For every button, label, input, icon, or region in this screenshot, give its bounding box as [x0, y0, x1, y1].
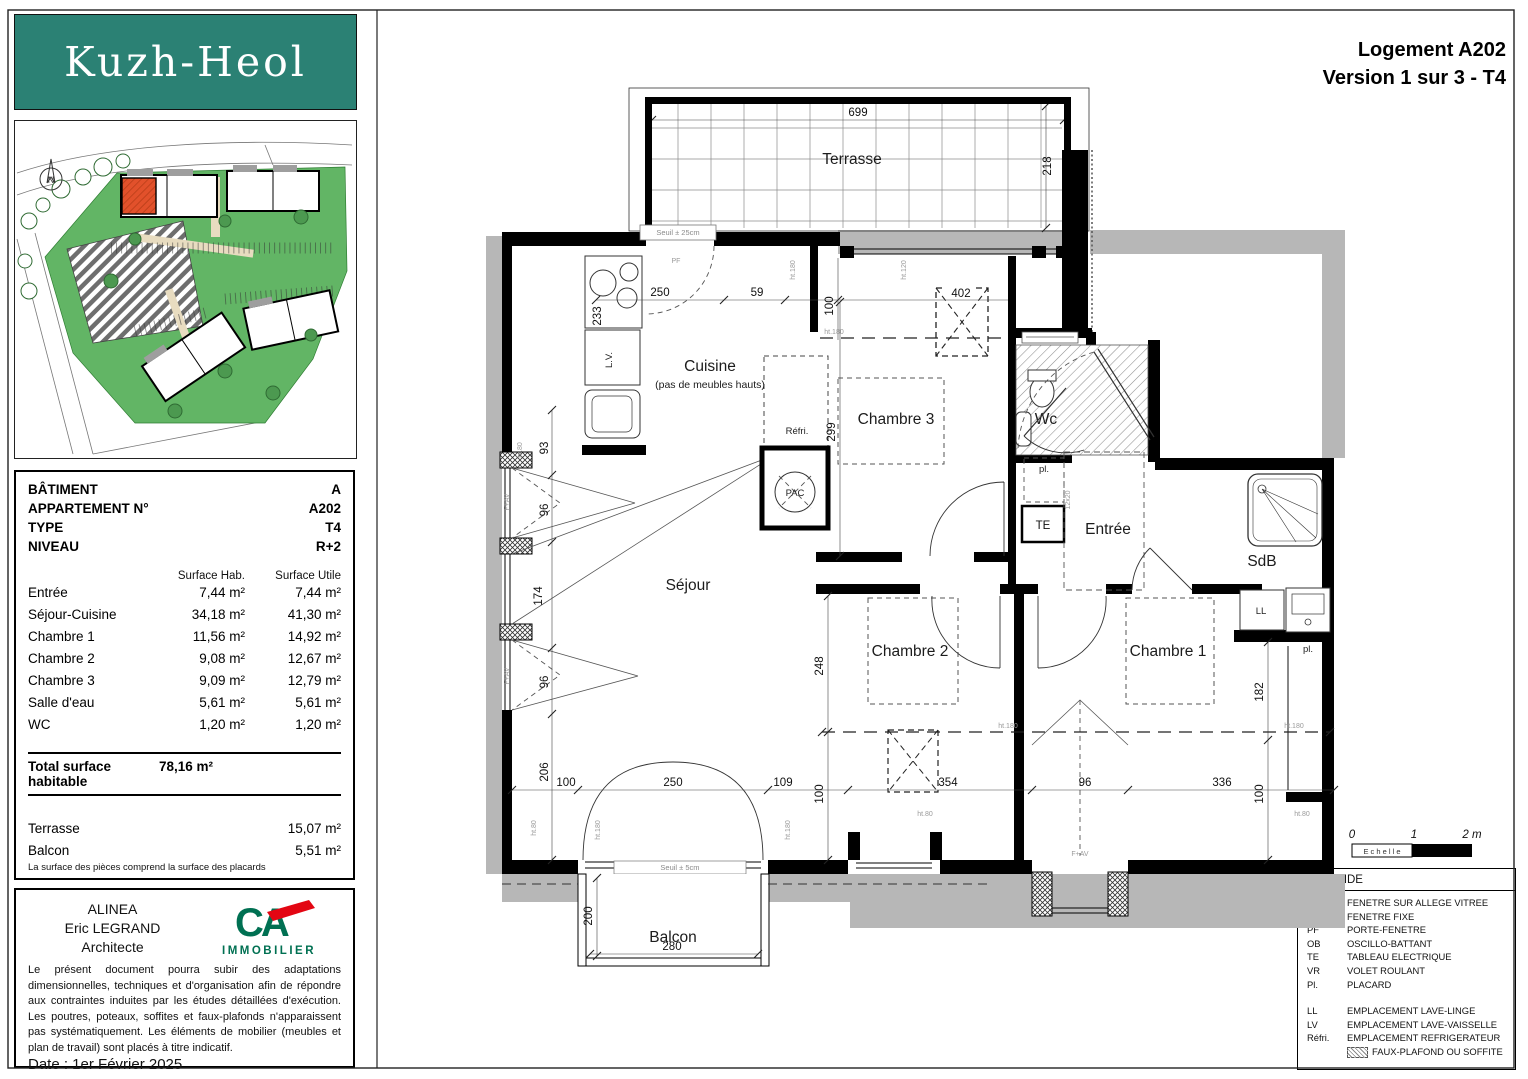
dim-336: 336	[1212, 777, 1231, 789]
dim-206: 206	[539, 762, 551, 781]
dim-248: 248	[814, 656, 826, 675]
sdb-room: SdB LL	[1240, 474, 1330, 632]
dim-299: 299	[826, 422, 838, 441]
dim-96: 96	[539, 504, 551, 517]
window-type-label: F+AV	[504, 493, 511, 511]
dim-109: 109	[773, 777, 792, 789]
chambre3-door	[930, 482, 1004, 556]
ht-label: ht.80	[1294, 811, 1310, 818]
scale-0: 0	[1349, 829, 1356, 841]
room-label-entree: Entrée	[1085, 521, 1131, 538]
dim-100: 100	[1254, 784, 1266, 803]
ll-label: LL	[1256, 606, 1267, 617]
ht-label: ht.120	[901, 260, 908, 280]
volet-roulant-box	[500, 452, 532, 468]
bottom-dims: 100 250 109 354 96 336	[508, 777, 1338, 794]
chambre2: Chambre 2 248 100	[814, 592, 1000, 868]
chambre3: Chambre 3 ht.180 402 299	[820, 286, 1008, 560]
room-label-chambre1: Chambre 1	[1130, 643, 1207, 660]
dim-182: 182	[1254, 682, 1266, 701]
terrace-door: Seuil ± 25cm PF	[640, 225, 716, 314]
volet-roulant-box	[500, 538, 532, 554]
room-label-terrasse: Terrasse	[822, 151, 881, 168]
dim-100: 100	[824, 296, 836, 315]
ht-label: ht.80	[531, 820, 538, 836]
refri-label: Réfri.	[786, 426, 809, 437]
room-label-sejour: Séjour	[666, 577, 711, 594]
room-note-cuisine: (pas de meubles hauts)	[655, 379, 765, 391]
room-label-sdb: SdB	[1247, 553, 1276, 570]
washbasin-icon	[1286, 588, 1330, 632]
dim-100: 100	[556, 777, 575, 789]
left-windows: F+AV F+AV	[500, 452, 775, 710]
ht-label: ht.80	[517, 442, 524, 458]
ht-label: ht.180	[595, 820, 602, 840]
ht-label: ht.80	[917, 811, 933, 818]
ht-label: ht.180	[785, 820, 792, 840]
room-label-chambre3: Chambre 3	[858, 411, 935, 428]
pac-closet: PAC	[762, 448, 828, 528]
dim-cuisine: 250	[650, 287, 669, 299]
floor-plan-drawing: Terrasse 699 218	[0, 0, 1528, 1079]
ht-label: ht.180	[824, 329, 844, 336]
dim-terrasse-width: 699	[848, 107, 867, 119]
ht-label: ht.180	[1284, 723, 1304, 730]
scale-1: 1	[1411, 829, 1417, 841]
seuil-label: Seuil ± 25cm	[656, 228, 699, 237]
door-type-label: PF	[672, 258, 681, 265]
dim-200: 200	[583, 906, 595, 925]
scale-2m: 2 m	[1461, 829, 1482, 841]
dim-96: 96	[1079, 777, 1092, 789]
placard-label: pl.	[1303, 644, 1313, 655]
ht-label: ht.180	[790, 260, 797, 280]
dim-100: 100	[814, 784, 826, 803]
dim-402: 402	[951, 288, 970, 300]
window-type-label: F+AV	[1071, 851, 1089, 858]
left-dims: 93 96 174 96 206 ht.80 ht.180 ht.80 ht.1…	[517, 406, 792, 864]
dim-terrasse-depth: 218	[1042, 156, 1054, 175]
te-label: TE	[1036, 520, 1051, 532]
scale-label: E c h e l l e	[1363, 847, 1400, 856]
scale-bar: 0 1 2 m E c h e l l e	[1349, 829, 1482, 857]
placard-size-label: 12x20	[1065, 490, 1072, 509]
volet-roulant-box	[500, 624, 532, 640]
washbasin-icon	[1016, 412, 1031, 446]
te-placard: pl. TE	[1022, 458, 1064, 542]
sdb-door	[1132, 548, 1192, 590]
room-label-cuisine: Cuisine	[684, 358, 736, 375]
dim-354: 354	[938, 777, 958, 789]
window-type-label: F+AV	[504, 667, 511, 685]
dim-59: 59	[751, 287, 764, 299]
dim-280: 280	[662, 941, 681, 953]
pac-label: PAC	[786, 488, 805, 499]
dim-174: 174	[533, 586, 545, 606]
plan-document-page: Kuzh-Heol	[0, 0, 1528, 1079]
lv-label: L.V.	[604, 352, 615, 368]
placard-label: pl.	[1039, 464, 1049, 475]
dim-93: 93	[539, 442, 551, 455]
dim-96: 96	[539, 676, 551, 689]
walls	[502, 97, 1334, 874]
room-label-chambre2: Chambre 2	[872, 643, 949, 660]
volet-roulant-box	[1032, 872, 1052, 916]
terrasse-area: Terrasse 699 218	[629, 88, 1092, 335]
volet-roulant-box	[1108, 872, 1128, 916]
ht-label: ht.180	[998, 723, 1018, 730]
seuil-label: Seuil ± 5cm	[660, 863, 699, 872]
chambre1-door	[1038, 596, 1106, 668]
dim-counter: 233	[592, 306, 604, 325]
entree: 12x20 Entrée	[1064, 452, 1192, 590]
dim-250: 250	[663, 777, 682, 789]
